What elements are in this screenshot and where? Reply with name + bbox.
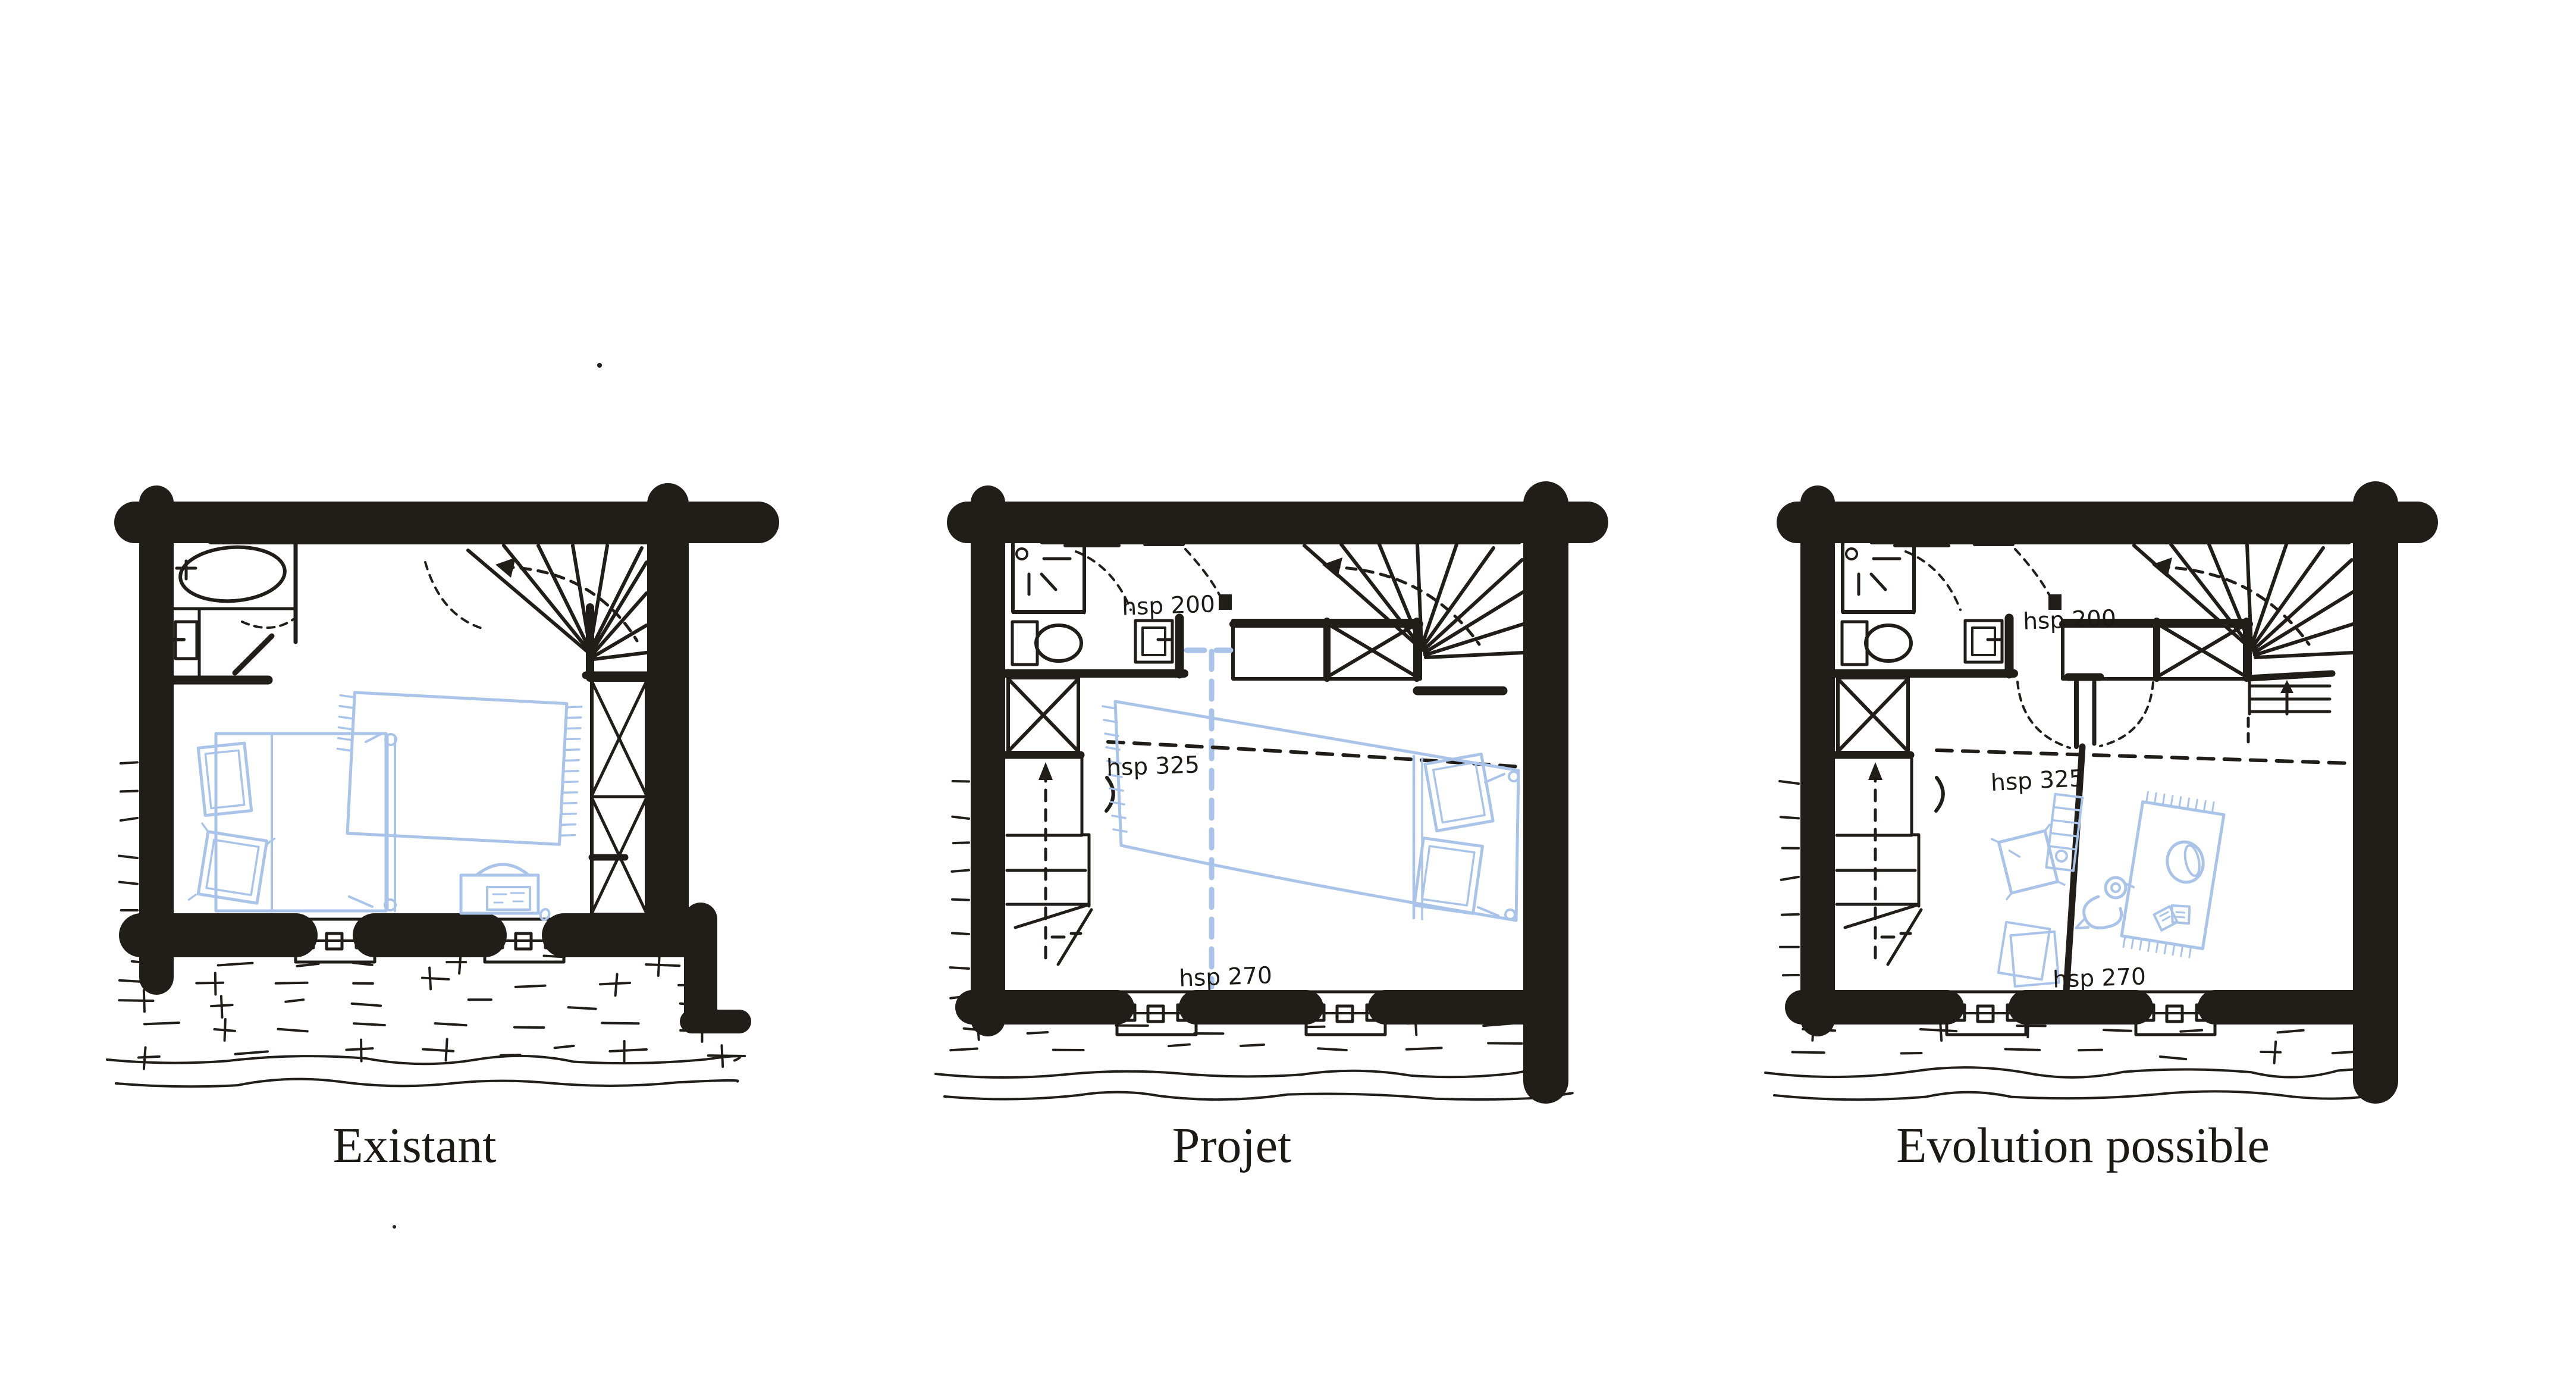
left-staircase-and-wardrobe — [1005, 678, 1113, 964]
left-staircase-and-wardrobe — [1834, 678, 1943, 964]
door-swing — [425, 562, 484, 629]
papers — [1998, 922, 2050, 980]
ceiling-height-label: hsp 325 — [1106, 751, 1200, 781]
cushion — [1992, 825, 2064, 899]
stray-mark — [597, 363, 602, 368]
plan-evolution: hsp 200 hsp 325 hsp 270 — [1765, 503, 2417, 1099]
pillow — [198, 743, 251, 816]
chair — [476, 864, 529, 875]
ceiling-height-label: hsp 325 — [1990, 765, 2085, 797]
plan-caption: Existant — [332, 1118, 496, 1173]
double-bed — [1103, 701, 1518, 920]
straight-staircase — [2248, 673, 2332, 747]
pillow — [1414, 838, 1483, 914]
ceiling-height-label: hsp 200 — [1122, 591, 1216, 621]
exterior-walls — [1797, 503, 2417, 1081]
door-swing — [2100, 682, 2153, 746]
ceiling-height-label: hsp 270 — [1179, 962, 1273, 992]
stray-mark — [393, 1225, 396, 1229]
door-swing — [242, 619, 293, 628]
basket — [2164, 839, 2207, 886]
exterior-walls — [968, 503, 1587, 1081]
door-leaf — [235, 636, 272, 673]
desk — [461, 864, 551, 921]
laptop — [487, 887, 530, 910]
wardrobe — [592, 680, 647, 914]
plan-caption: Evolution possible — [1896, 1118, 2270, 1173]
plan-projet: hsp 200 hsp 325 hsp 270 — [936, 503, 1587, 1099]
bathroom — [172, 540, 303, 680]
winder-staircase — [425, 546, 648, 678]
double-bed — [189, 734, 396, 911]
plan-caption: Projet — [1172, 1118, 1292, 1173]
ceiling-height-label: hsp 200 — [2023, 605, 2117, 635]
floor-plans-drawing: hsp 200 hsp 325 hsp 270 — [0, 0, 2576, 1391]
door-swing — [2017, 682, 2070, 748]
terrain-hatch — [936, 781, 1573, 1099]
ceiling-height-label: hsp 270 — [2053, 963, 2147, 993]
kids-room-items — [1992, 791, 2226, 986]
plan-existant — [107, 503, 758, 1086]
pillow — [1425, 754, 1493, 831]
open-book — [2153, 903, 2192, 931]
ceiling-height-line — [1937, 750, 2352, 763]
exterior-walls — [135, 503, 758, 1022]
proposed-partition-dashed — [1187, 650, 1231, 987]
sketch-page: hsp 200 hsp 325 hsp 270 — [0, 0, 2576, 1391]
fringed-blanket — [333, 692, 582, 845]
bathtub — [178, 544, 287, 604]
bathroom-shower-toilet-sink — [1833, 541, 2014, 674]
pillow — [189, 823, 275, 911]
